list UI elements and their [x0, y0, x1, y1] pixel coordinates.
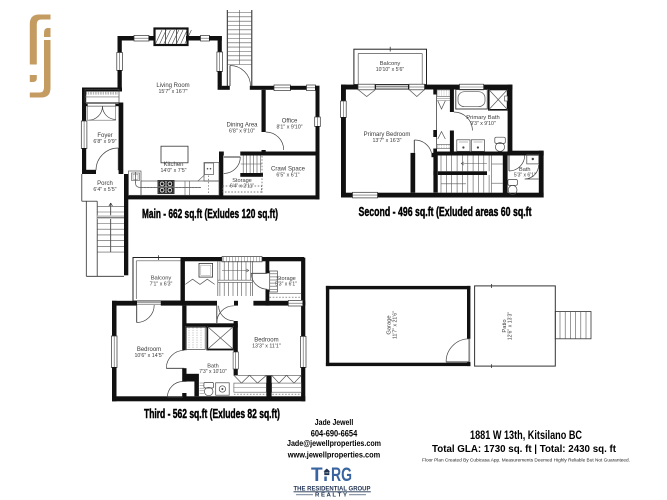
svg-text:Living Room: Living Room [156, 83, 189, 89]
svg-text:Dining Area: Dining Area [226, 122, 258, 128]
svg-text:Jade@jewellproperties.com: Jade@jewellproperties.com [287, 438, 381, 448]
svg-text:Main - 662 sq.ft (Exludes 120: Main - 662 sq.ft (Exludes 120 sq.ft) [142, 206, 278, 221]
svg-text:R E A L T Y: R E A L T Y [315, 493, 348, 499]
svg-text:Porch: Porch [97, 181, 113, 187]
svg-text:13'7" x 16'3": 13'7" x 16'3" [372, 138, 401, 144]
svg-text:Crawl Space: Crawl Space [271, 166, 306, 172]
svg-text:Total GLA: 1730 sq. ft | Tota: Total GLA: 1730 sq. ft | Total: 2430 sq.… [432, 443, 616, 455]
svg-text:Bedroom: Bedroom [137, 347, 161, 353]
svg-text:14'0" x 7'5": 14'0" x 7'5" [160, 168, 186, 174]
svg-text:Foyer: Foyer [97, 133, 112, 139]
svg-text:6'8" x 9'9": 6'8" x 9'9" [93, 139, 116, 145]
svg-text:13'3" x 11'1": 13'3" x 11'1" [252, 344, 281, 350]
svg-text:Garage: Garage [386, 315, 392, 334]
svg-text:Floor Plan Created By Cubicasa: Floor Plan Created By Cubicasa App. Meas… [422, 458, 630, 463]
svg-text:Third - 562 sq.ft (Exludes 82: Third - 562 sq.ft (Exludes 82 sq.ft) [144, 406, 280, 421]
svg-text:12'6" x 13'3": 12'6" x 13'3" [507, 312, 513, 341]
svg-text:Balcony: Balcony [151, 275, 172, 281]
svg-text:6'5" x 6'1": 6'5" x 6'1" [276, 173, 299, 179]
svg-text:6'4" x 2'11": 6'4" x 2'11" [230, 184, 254, 190]
svg-text:Primary Bedroom: Primary Bedroom [364, 132, 411, 138]
svg-text:9'3" x 9'10": 9'3" x 9'10" [470, 121, 496, 127]
svg-text:7'1" x 6'3": 7'1" x 6'3" [150, 282, 173, 288]
svg-text:6'4" x 5'5": 6'4" x 5'5" [93, 187, 116, 193]
svg-text:11'7" x 21'6": 11'7" x 21'6" [393, 311, 399, 339]
svg-text:15'7" x 16'7": 15'7" x 16'7" [158, 89, 187, 95]
svg-text:T: T [311, 465, 323, 486]
svg-text:10'6" x 14'5": 10'6" x 14'5" [134, 353, 163, 359]
svg-text:5'3" x 6'1": 5'3" x 6'1" [275, 282, 297, 288]
svg-text:Office: Office [282, 118, 298, 124]
svg-text:10'10" x 5'6": 10'10" x 5'6" [376, 67, 405, 73]
svg-text:5'3" x 6'1": 5'3" x 6'1" [514, 173, 536, 179]
svg-text:Balcony: Balcony [380, 61, 401, 67]
svg-text:RG: RG [331, 465, 352, 486]
svg-text:1881 W 13th, Kitsilano BC: 1881 W 13th, Kitsilano BC [470, 430, 582, 442]
svg-text:Primary Bath: Primary Bath [466, 115, 500, 121]
svg-text:Kitchen: Kitchen [163, 162, 183, 168]
svg-text:8'1" x 9'10": 8'1" x 9'10" [276, 125, 302, 131]
svg-text:Second - 496 sq.ft (Exluded ar: Second - 496 sq.ft (Exluded areas 60 sq.… [359, 204, 532, 219]
svg-text:7'3" x 10'10": 7'3" x 10'10" [199, 369, 227, 375]
svg-text:6'8" x 9'10": 6'8" x 9'10" [229, 129, 255, 135]
svg-text:Jade Jewell: Jade Jewell [315, 417, 354, 427]
svg-text:www.jewellproperties.com: www.jewellproperties.com [287, 449, 381, 459]
svg-text:Bedroom: Bedroom [254, 337, 278, 343]
